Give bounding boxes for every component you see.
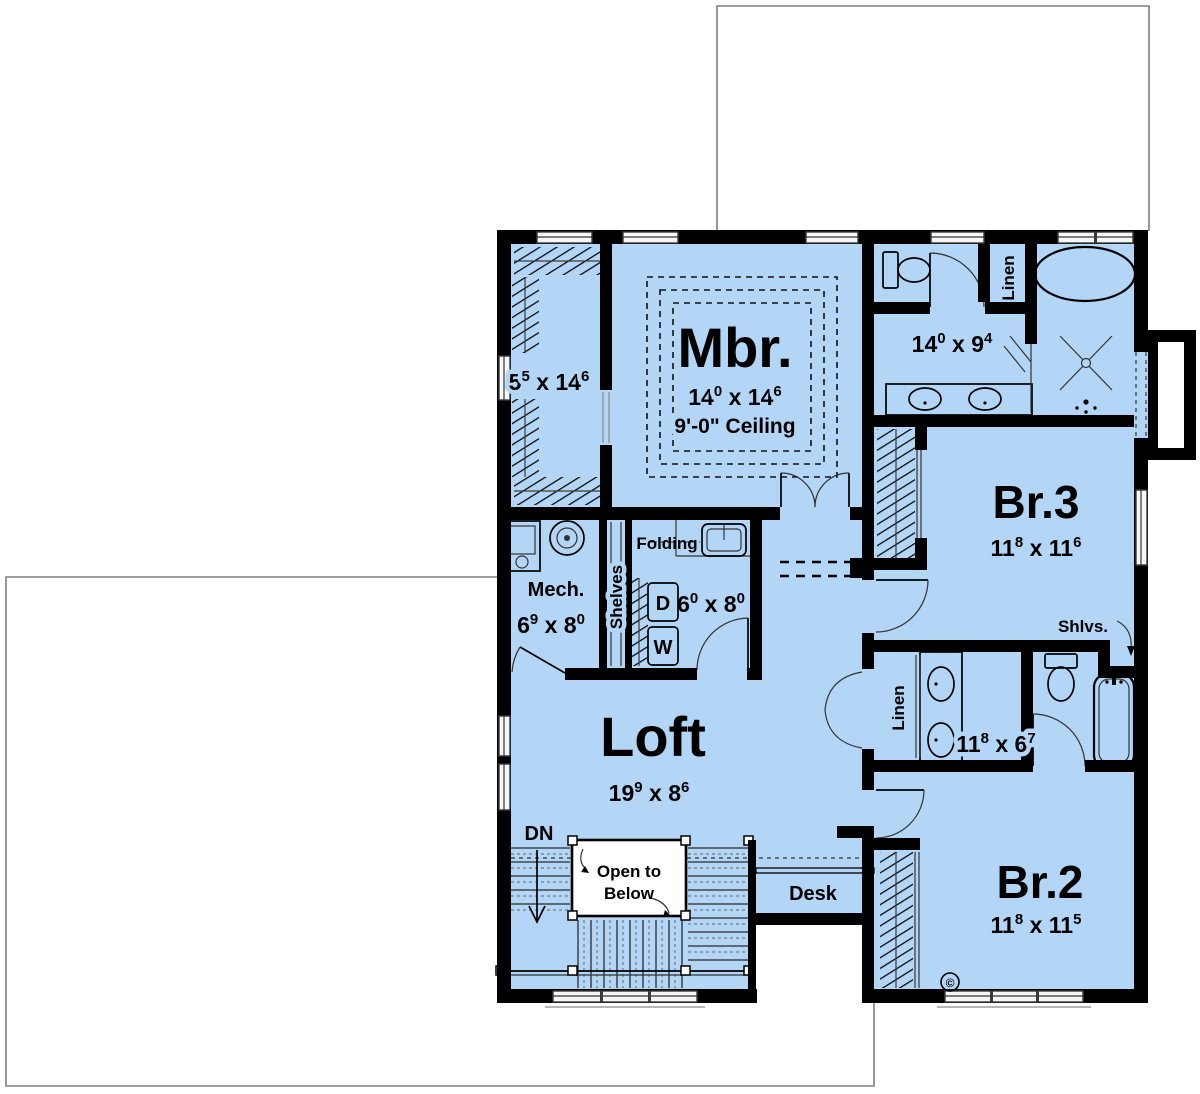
mech-label: Mech. <box>528 579 585 601</box>
dryer-label: D <box>656 593 670 615</box>
copyright-symbol: © <box>946 976 955 990</box>
master-bedroom-label: Mbr. <box>677 316 792 379</box>
stairs-dn-label: DN <box>525 823 554 845</box>
desk-label: Desk <box>789 883 838 905</box>
master-bedroom-ceiling: 9'-0" Ceiling <box>674 415 795 438</box>
loft-label: Loft <box>600 705 706 768</box>
bedroom2-dims: 118 x 115 <box>991 911 1082 938</box>
hall-bath-dims: 118 x 67 <box>956 730 1035 757</box>
floor-plan-page: 55 x 146 Mbr. 140 x 146 9'-0" Ceiling 14… <box>0 0 1200 1094</box>
bedroom3-label: Br.3 <box>993 476 1080 528</box>
bedroom3-dims: 118 x 116 <box>991 534 1082 561</box>
open-to-below-line2: Below <box>604 884 655 903</box>
second-floor-plan: 55 x 146 Mbr. 140 x 146 9'-0" Ceiling 14… <box>0 0 1200 1094</box>
laundry-dims: 60 x 80 <box>677 590 745 617</box>
desk-nook <box>756 868 874 873</box>
open-to-below-line1: Open to <box>597 862 661 881</box>
shlvs-label: Shlvs. <box>1058 617 1108 636</box>
master-linen-label: Linen <box>999 255 1018 300</box>
folding-label: Folding <box>636 534 697 553</box>
mech-dims: 69 x 80 <box>517 611 585 638</box>
washer-label: W <box>654 637 673 659</box>
floor-notch <box>755 925 868 1003</box>
loft-dims: 199 x 86 <box>609 779 690 806</box>
master-closet-dims: 55 x 146 <box>509 368 590 395</box>
master-bath-dims: 140 x 94 <box>912 330 993 357</box>
shelves-label: Shelves <box>607 565 626 629</box>
master-bedroom-dims: 140 x 146 <box>688 383 781 410</box>
hall-linen-label: Linen <box>889 685 908 730</box>
bedroom2-label: Br.2 <box>997 856 1084 908</box>
